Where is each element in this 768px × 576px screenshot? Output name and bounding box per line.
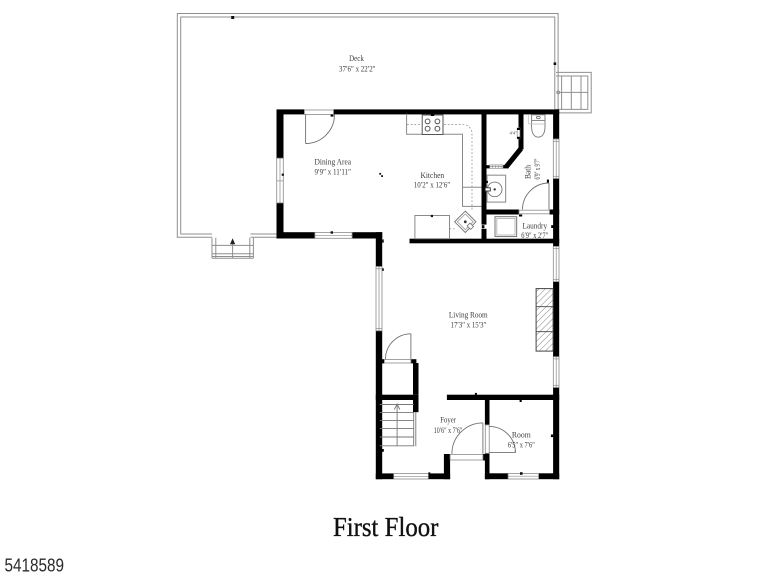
svg-text:17′3″ x 15′3″: 17′3″ x 15′3″ xyxy=(451,320,487,329)
svg-text:Deck: Deck xyxy=(349,53,364,63)
svg-text:Dining Area: Dining Area xyxy=(315,157,352,167)
svg-text:Foyer: Foyer xyxy=(440,415,456,425)
svg-text:Laundry: Laundry xyxy=(523,220,548,230)
svg-text:6′9″ x 2′7″: 6′9″ x 2′7″ xyxy=(521,231,548,240)
svg-text:37′6″ x 22′2″: 37′6″ x 22′2″ xyxy=(339,64,376,73)
svg-text:Kitchen: Kitchen xyxy=(420,170,444,180)
svg-text:9′9″ x 11′11″: 9′9″ x 11′11″ xyxy=(315,168,352,177)
svg-text:First Floor: First Floor xyxy=(333,512,439,542)
svg-text:4′4″: 4′4″ xyxy=(509,131,517,136)
svg-text:Room: Room xyxy=(512,429,531,439)
svg-text:Bath: Bath xyxy=(522,165,532,179)
svg-text:6′9″ x 9′7″: 6′9″ x 9′7″ xyxy=(533,159,542,180)
svg-text:10′6″ x 7′6″: 10′6″ x 7′6″ xyxy=(434,426,463,435)
svg-text:Living Room: Living Room xyxy=(449,309,488,319)
svg-text:6′5″ x 7′6″: 6′5″ x 7′6″ xyxy=(508,440,535,449)
svg-text:10′2″ x 12′6″: 10′2″ x 12′6″ xyxy=(414,180,451,189)
svg-text:5418589: 5418589 xyxy=(5,555,65,576)
